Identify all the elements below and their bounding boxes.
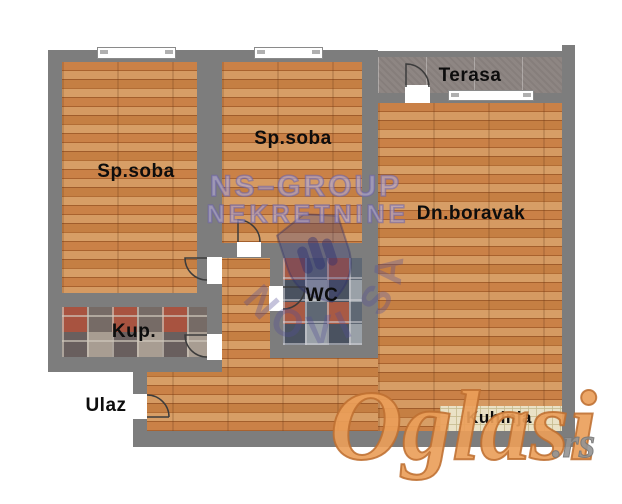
door-gap-entrance bbox=[132, 394, 147, 419]
room-label-bathroom: Kup. bbox=[112, 321, 156, 343]
window-living-room bbox=[448, 90, 534, 101]
agency-name-watermark: NS–GROUP bbox=[210, 170, 402, 204]
room-label-wc: WC bbox=[306, 285, 339, 307]
door-gap-bathroom bbox=[207, 334, 222, 360]
window-bedroom-middle bbox=[254, 47, 323, 59]
wall-terrace-top bbox=[378, 51, 562, 57]
room-label-bedroom-middle: Sp.soba bbox=[254, 128, 331, 150]
room-label-bedroom-left: Sp.soba bbox=[97, 161, 174, 183]
room-label-terrace: Terasa bbox=[439, 65, 502, 87]
door-gap-bedroom-left bbox=[207, 257, 222, 284]
floor-plan: NOVI SAD Sp.soba Sp.soba Terasa Dn.borav… bbox=[0, 0, 622, 504]
wall-bathroom-top bbox=[48, 293, 222, 307]
window-bedroom-left bbox=[97, 47, 176, 59]
exterior-notch bbox=[0, 372, 133, 504]
door-gap-bedroom-middle bbox=[237, 242, 261, 257]
agency-type-watermark: NEKRETNINE bbox=[207, 201, 410, 230]
room-label-living-room: Dn.boravak bbox=[417, 203, 525, 225]
door-gap-terrace bbox=[405, 85, 430, 103]
site-watermark-domain: .rs bbox=[552, 420, 595, 468]
room-label-entrance: Ulaz bbox=[85, 395, 126, 417]
wall-wc-right bbox=[362, 256, 378, 358]
wall-wc-bottom bbox=[270, 345, 378, 358]
wall-left bbox=[48, 50, 62, 372]
door-gap-wc bbox=[269, 286, 283, 311]
wall-bathroom-bottom bbox=[48, 357, 222, 372]
